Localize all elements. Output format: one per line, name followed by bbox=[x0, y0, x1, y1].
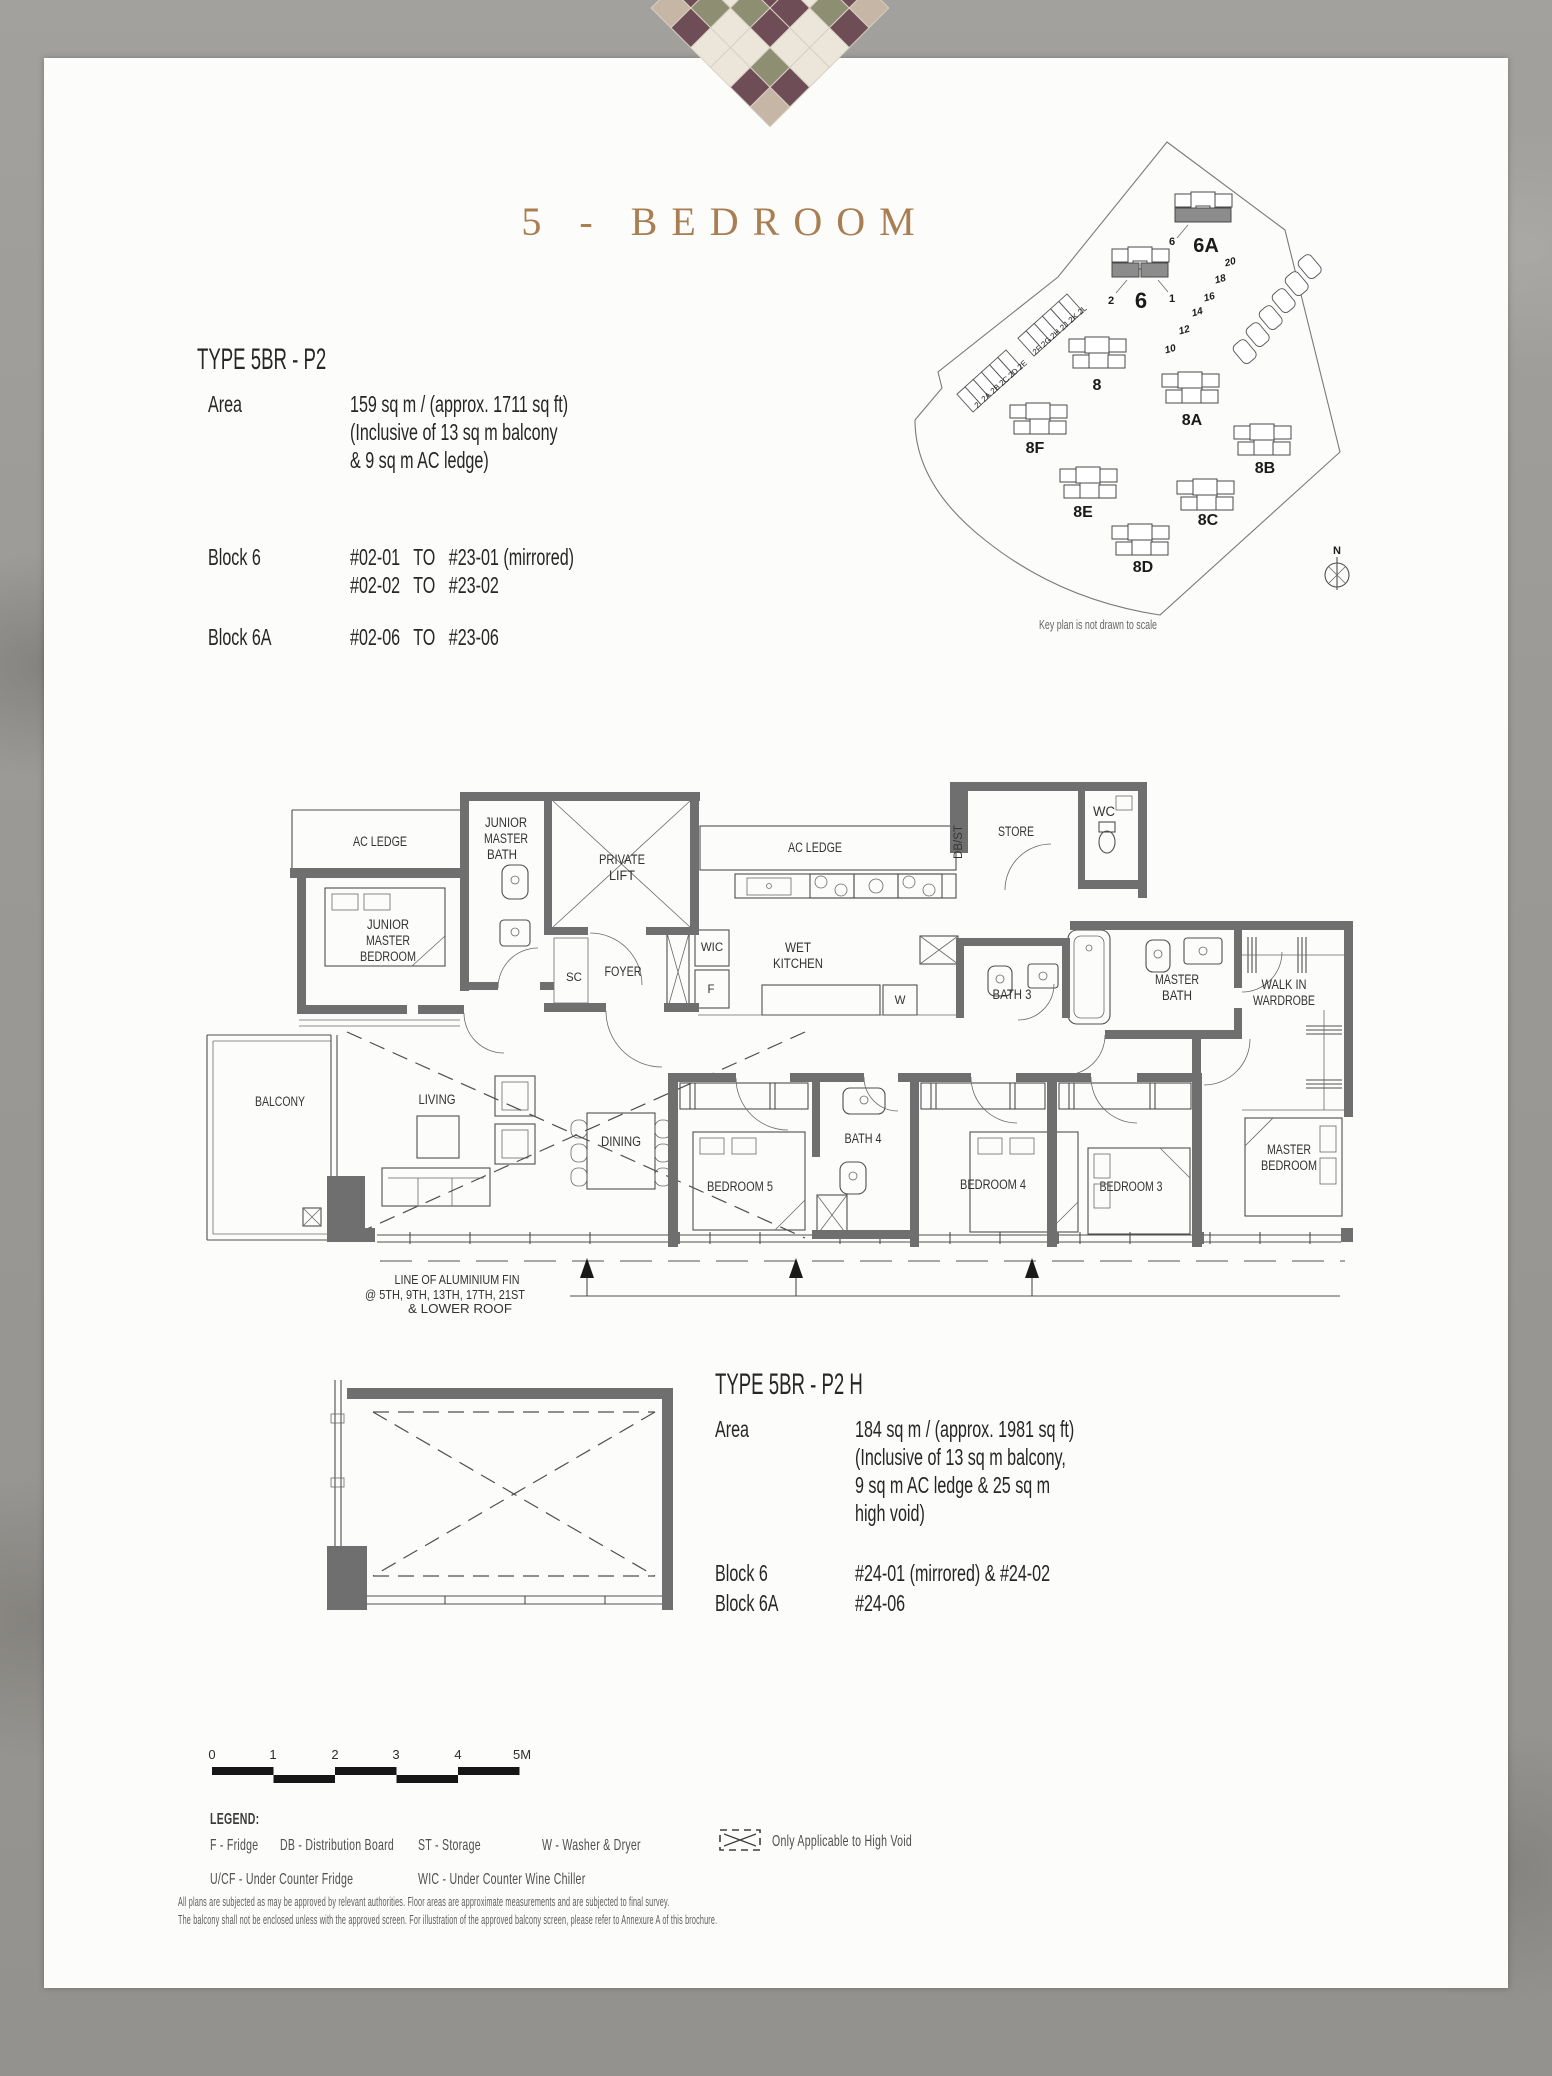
landed-number: 18 bbox=[1214, 273, 1228, 287]
block-label: 6 bbox=[1135, 288, 1147, 313]
area-value-line: (Inclusive of 13 sq m balcony bbox=[350, 421, 558, 444]
area-value-line: (Inclusive of 13 sq m balcony, bbox=[855, 1446, 1066, 1469]
block-label: 6A bbox=[1193, 235, 1219, 257]
floor-plan-drawing: AC LEDGE JUNIOR MASTER BATH PRIVATE LIFT… bbox=[150, 780, 1365, 1330]
room-label-bath-4: BATH 4 bbox=[845, 1131, 882, 1146]
tower-block-8e: 8E bbox=[1060, 467, 1117, 521]
tower-block-8c: 8C bbox=[1177, 479, 1234, 529]
void-linework bbox=[331, 1380, 662, 1604]
svg-text:MASTER: MASTER bbox=[484, 831, 528, 846]
area-value-line: & 9 sq m AC ledge) bbox=[350, 449, 489, 472]
room-label-junior-master-bath: JUNIOR bbox=[485, 815, 527, 830]
room-label-balcony: BALCONY bbox=[255, 1094, 305, 1109]
room-label-foyer: FOYER bbox=[605, 964, 642, 979]
keyplan-caption: Key plan is not drawn to scale bbox=[1039, 617, 1157, 632]
scale-bar: 0 1 2 3 4 5M bbox=[200, 1745, 540, 1795]
high-void-plan bbox=[325, 1378, 695, 1628]
room-label-master-bedroom: MASTER bbox=[1267, 1142, 1311, 1157]
room-label-wet-kitchen: WET bbox=[785, 940, 811, 955]
room-label-dbst: DB/ST bbox=[953, 825, 965, 859]
block-label: 8B bbox=[1255, 460, 1275, 477]
block-label: 8A bbox=[1182, 412, 1203, 429]
block6a-label: Block 6A bbox=[208, 626, 272, 649]
landed-number: 14 bbox=[1191, 306, 1205, 320]
scale-tick: 3 bbox=[392, 1747, 399, 1762]
block-label: 8F bbox=[1026, 440, 1045, 457]
svg-text:& LOWER ROOF: & LOWER ROOF bbox=[408, 1302, 512, 1316]
room-label-fridge: F bbox=[707, 984, 714, 996]
legend-item: WIC - Under Counter Wine Chiller bbox=[418, 1872, 585, 1888]
bed-symbol bbox=[325, 888, 1342, 1234]
block-label: 8 bbox=[1093, 377, 1102, 394]
room-label-master-bath: MASTER bbox=[1155, 972, 1199, 987]
room-label-wc: WC bbox=[1093, 804, 1115, 819]
aluminium-fin-note: LINE OF ALUMINIUM FIN bbox=[395, 1273, 520, 1287]
svg-text:@ 5TH, 9TH, 13TH, 17TH, 21ST: @ 5TH, 9TH, 13TH, 17TH, 21ST bbox=[365, 1288, 525, 1302]
tower-block-8: 8 bbox=[1069, 337, 1126, 394]
high-void-note: Only Applicable to High Void bbox=[772, 1834, 912, 1850]
legend-item: F - Fridge bbox=[210, 1838, 258, 1854]
room-label-walk-in-wardrobe: WALK IN bbox=[1262, 977, 1307, 992]
room-label-store: STORE bbox=[998, 824, 1034, 839]
landed-number: 12 bbox=[1178, 324, 1192, 338]
tower-block-8b: 8B bbox=[1234, 424, 1291, 477]
tower-block-8f: 8F bbox=[1010, 403, 1067, 457]
svg-text:N: N bbox=[1333, 545, 1341, 557]
brochure-page: 5 - BEDROOM TYPE 5BR - P2 Area 159 sq m … bbox=[0, 0, 1552, 2076]
block6-label: Block 6 bbox=[715, 1562, 768, 1585]
block6a-units: #24-06 bbox=[855, 1592, 905, 1615]
unit-number: 2 bbox=[1108, 295, 1114, 307]
room-label-sc: SC bbox=[566, 972, 582, 984]
room-label-bath-3: BATH 3 bbox=[993, 987, 1032, 1002]
room-label-bedroom-4: BEDROOM 4 bbox=[960, 1177, 1026, 1192]
svg-text:KITCHEN: KITCHEN bbox=[773, 956, 823, 971]
scale-tick: 4 bbox=[454, 1747, 461, 1762]
scale-tick: 0 bbox=[208, 1747, 215, 1762]
legend-item: ST - Storage bbox=[418, 1838, 481, 1854]
area-value-line: high void) bbox=[855, 1502, 925, 1525]
unit-number: 1 bbox=[1169, 293, 1175, 305]
tower-block-6: 6 2 1 bbox=[1108, 247, 1175, 313]
room-label-wic: WIC bbox=[701, 942, 723, 954]
room-label-junior-master-bedroom: JUNIOR bbox=[367, 917, 409, 932]
tower-block-8a: 8A bbox=[1162, 372, 1219, 429]
block6a-label: Block 6A bbox=[715, 1592, 779, 1615]
tower-block-6a: 6A 6 bbox=[1169, 192, 1232, 257]
room-label-dining: DINING bbox=[601, 1134, 641, 1149]
svg-text:BATH: BATH bbox=[1162, 988, 1192, 1003]
area-label: Area bbox=[715, 1418, 749, 1441]
block6-label: Block 6 bbox=[208, 546, 261, 569]
block6a-units: #02-06 TO #23-06 bbox=[350, 626, 499, 649]
disclaimer-line: The balcony shall not be enclosed unless… bbox=[178, 1914, 717, 1927]
svg-text:BEDROOM: BEDROOM bbox=[1261, 1158, 1317, 1173]
area-value-line: 184 sq m / (approx. 1981 sq ft) bbox=[855, 1418, 1074, 1441]
room-label-private-lift: PRIVATE bbox=[599, 852, 645, 867]
void-walls bbox=[327, 1388, 673, 1610]
room-label-washer: W bbox=[895, 995, 906, 1007]
disclaimer-line: All plans are subjected as may be approv… bbox=[178, 1896, 669, 1909]
block-label: 8E bbox=[1073, 504, 1093, 521]
room-label-ac-ledge-2: AC LEDGE bbox=[788, 840, 842, 855]
svg-text:BATH: BATH bbox=[487, 847, 517, 862]
svg-text:MASTER: MASTER bbox=[366, 933, 410, 948]
room-labels: AC LEDGE JUNIOR MASTER BATH PRIVATE LIFT… bbox=[255, 804, 1317, 1316]
svg-text:WARDROBE: WARDROBE bbox=[1253, 993, 1315, 1008]
block-label: 8D bbox=[1133, 559, 1153, 576]
room-label-bedroom-3: BEDROOM 3 bbox=[1100, 1179, 1163, 1194]
room-label-living: LIVING bbox=[419, 1092, 456, 1107]
high-void-legend-icon bbox=[718, 1828, 764, 1852]
key-plan: 2 2A 2B 2C 2D 2E 2F 2G 2H 2J 2K 2L 10 bbox=[900, 130, 1380, 650]
block6-units: #02-02 TO #23-02 bbox=[350, 574, 499, 597]
type-p2h-heading: TYPE 5BR - P2 H bbox=[715, 1370, 863, 1400]
area-value-line: 159 sq m / (approx. 1711 sq ft) bbox=[350, 393, 568, 416]
area-value-line: 9 sq m AC ledge & 25 sq m bbox=[855, 1474, 1050, 1497]
scale-tick: 5M bbox=[513, 1747, 531, 1762]
scale-tick: 2 bbox=[331, 1747, 338, 1762]
landed-number: 20 bbox=[1223, 256, 1238, 270]
tower-block-8d: 8D bbox=[1112, 524, 1169, 576]
room-label-ac-ledge-1: AC LEDGE bbox=[353, 834, 407, 849]
unit-number: 6 bbox=[1169, 236, 1175, 248]
landed-number: 16 bbox=[1203, 291, 1217, 305]
block-label: 8C bbox=[1198, 512, 1219, 529]
scale-tick: 1 bbox=[269, 1747, 276, 1762]
landed-strip: 10 12 14 16 18 20 bbox=[1164, 253, 1324, 366]
legend-item: U/CF - Under Counter Fridge bbox=[210, 1872, 353, 1888]
block6-units: #02-01 TO #23-01 (mirrored) bbox=[350, 546, 574, 569]
landed-number: 10 bbox=[1164, 343, 1178, 357]
north-arrow-icon: N bbox=[1325, 545, 1349, 590]
legend-item: W - Washer & Dryer bbox=[542, 1838, 641, 1854]
area-label: Area bbox=[208, 393, 242, 416]
legend-item: DB - Distribution Board bbox=[280, 1838, 394, 1854]
room-label-bedroom-5: BEDROOM 5 bbox=[707, 1179, 773, 1194]
legend-heading: LEGEND: bbox=[210, 1812, 259, 1828]
block6-units: #24-01 (mirrored) & #24-02 bbox=[855, 1562, 1050, 1585]
svg-text:BEDROOM: BEDROOM bbox=[360, 949, 416, 964]
brand-logo bbox=[635, 0, 905, 130]
type-p2-heading: TYPE 5BR - P2 bbox=[197, 345, 326, 375]
townhouse-strip: 2 2A 2B 2C 2D 2E 2F 2G 2H 2J 2K 2L bbox=[957, 294, 1089, 412]
svg-text:LIFT: LIFT bbox=[609, 868, 635, 883]
